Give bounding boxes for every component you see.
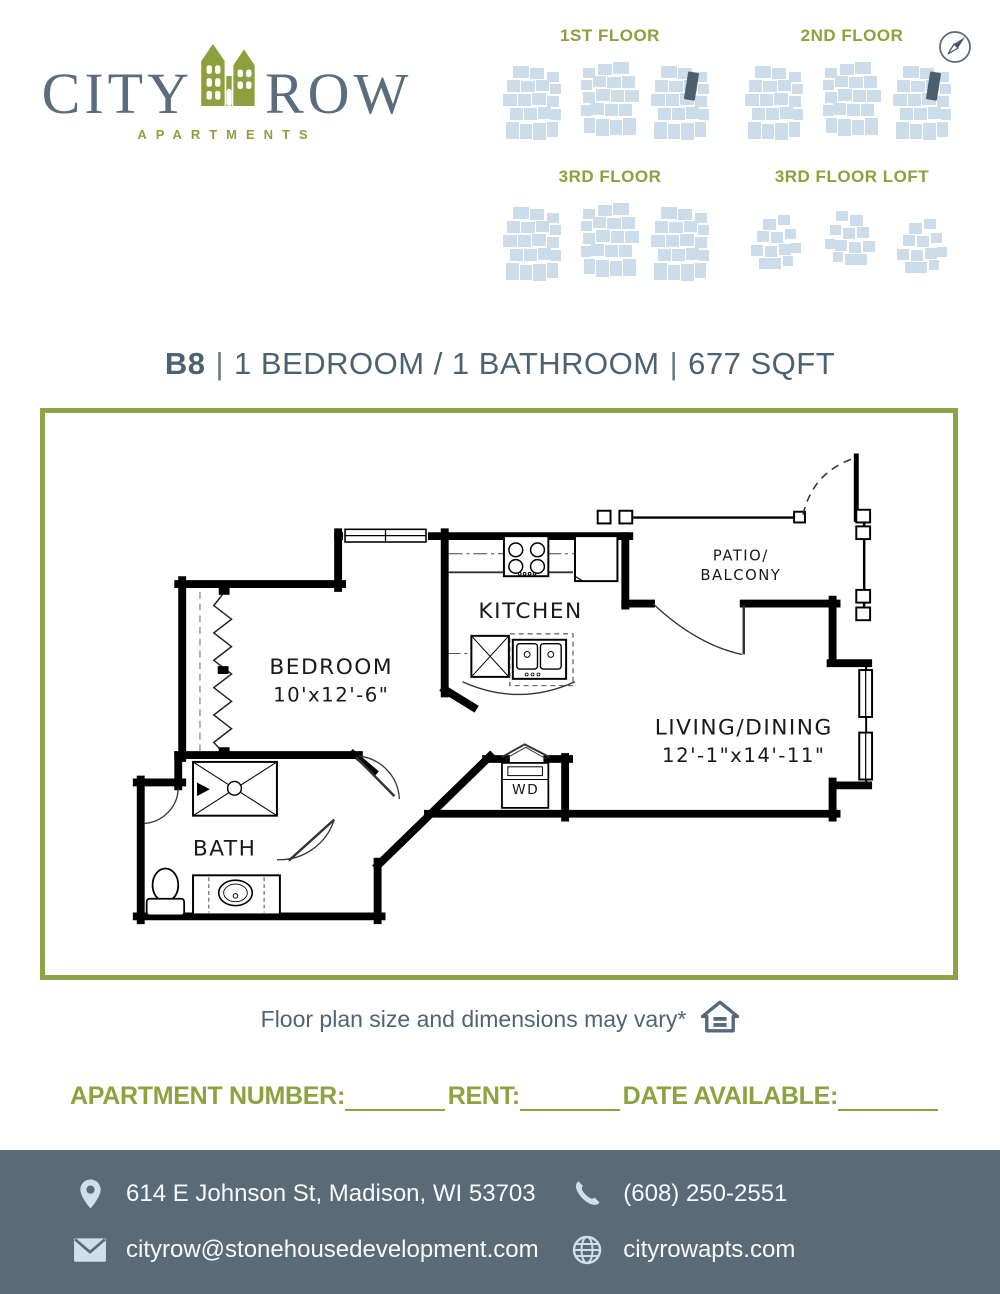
floor-label-1st: 1ST FLOOR: [492, 26, 728, 46]
email-text[interactable]: cityrow@stonehousedevelopment.com: [126, 1236, 539, 1264]
website-text[interactable]: cityrowapts.com: [623, 1236, 795, 1264]
rent-group: RENT:: [448, 1082, 620, 1111]
floor-plan-frame: KITCHEN BEDROOM 10'x12'-6" LIVING/DINING…: [40, 408, 958, 980]
floor-label-3rd: 3RD FLOOR: [492, 167, 728, 187]
bath-closet-door-swing: [144, 787, 179, 823]
date-available-label: DATE AVAILABLE:: [623, 1082, 838, 1111]
patio-door-swing: [653, 604, 742, 655]
address-text: 614 E Johnson St, Madison, WI 53703: [126, 1180, 536, 1208]
bedroom-closet: [200, 588, 232, 754]
title-separator: |: [205, 346, 234, 381]
bedroom-windows: [343, 527, 428, 545]
floor-map-1st: [503, 60, 718, 148]
phone-text[interactable]: (608) 250-2551: [623, 1180, 787, 1208]
floor-cell-1st: 1ST FLOOR: [492, 26, 728, 153]
patio-label-line2: BALCONY: [700, 567, 781, 584]
living-label: LIVING/DINING: [655, 716, 833, 741]
compass-icon: [936, 28, 974, 71]
laundry-label: WD: [512, 782, 539, 798]
floor-map-2nd: [745, 60, 960, 148]
bath-vanity: [193, 875, 280, 914]
kitchen-label: KITCHEN: [478, 599, 582, 624]
address-row: 614 E Johnson St, Madison, WI 53703: [72, 1176, 569, 1212]
floor-label-3rd-loft: 3RD FLOOR LOFT: [734, 167, 970, 187]
floor-cell-3rd: 3RD FLOOR: [492, 167, 728, 294]
disclaimer-row: Floor plan size and dimensions may vary*: [0, 1000, 1000, 1038]
floor-plan-drawing: KITCHEN BEDROOM 10'x12'-6" LIVING/DINING…: [45, 413, 953, 975]
unit-bed-bath: 1 BEDROOM / 1 BATHROOM: [234, 346, 660, 381]
living-windows: [859, 663, 872, 785]
living-dims: 12'-1"x14'-11": [662, 744, 825, 767]
location-pin-icon: [72, 1176, 108, 1212]
floor-map-3rd: [503, 201, 718, 289]
bedroom-dims: 10'x12'-6": [273, 683, 389, 706]
patio-label-line1: PATIO/: [713, 548, 769, 565]
rent-blank: [520, 1084, 620, 1111]
lease-form-line: APARTMENT NUMBER: RENT: DATE AVAILABLE:: [70, 1082, 938, 1111]
brand-name-right: ROW: [265, 66, 412, 121]
equal-housing-icon: [701, 1000, 739, 1038]
floor-locator: 1ST FLOOR 2ND FLOOR 3RD FLOOR: [492, 26, 970, 294]
flyer-page: CITY RO: [0, 0, 1000, 1294]
unit-title: B8|1 BEDROOM / 1 BATHROOM|677 SQFT: [0, 346, 1000, 382]
apartment-number-blank: [345, 1084, 445, 1111]
title-separator: |: [660, 346, 689, 381]
unit-code: B8: [165, 346, 206, 381]
envelope-icon: [72, 1237, 108, 1263]
brand-tagline: APARTMENTS: [52, 127, 402, 142]
patio-gate-swing: [803, 459, 852, 515]
brand-logo: CITY RO: [52, 34, 402, 142]
globe-icon: [569, 1235, 605, 1265]
apartment-number-group: APARTMENT NUMBER:: [70, 1082, 445, 1111]
bath-label: BATH: [193, 837, 257, 862]
bedroom-door-leaf: [356, 757, 394, 796]
date-available-blank: [838, 1084, 938, 1111]
buildings-icon: [198, 34, 260, 121]
apartment-number-label: APARTMENT NUMBER:: [70, 1082, 345, 1111]
bath-door-leaf: [289, 820, 334, 861]
floor-cell-3rd-loft: 3RD FLOOR LOFT: [734, 167, 970, 294]
brand-name-left: CITY: [42, 66, 193, 121]
floor-cell-2nd: 2ND FLOOR: [734, 26, 970, 153]
bath-door-swing: [277, 820, 334, 860]
toilet: [153, 868, 179, 901]
floor-map-3rd-loft: [745, 201, 960, 289]
floor-label-2nd: 2ND FLOOR: [734, 26, 970, 46]
disclaimer-text: Floor plan size and dimensions may vary*: [261, 1006, 687, 1033]
date-available-group: DATE AVAILABLE:: [623, 1082, 938, 1111]
contact-footer: 614 E Johnson St, Madison, WI 53703 (608…: [0, 1150, 1000, 1294]
unit-area: 677 SQFT: [688, 346, 835, 381]
website-row[interactable]: cityrowapts.com: [569, 1235, 960, 1265]
phone-row[interactable]: (608) 250-2551: [569, 1179, 960, 1209]
phone-icon: [569, 1179, 605, 1209]
email-row[interactable]: cityrow@stonehousedevelopment.com: [72, 1236, 569, 1264]
refrigerator: [575, 536, 617, 581]
rent-label: RENT:: [448, 1082, 520, 1111]
bedroom-label: BEDROOM: [269, 655, 393, 680]
